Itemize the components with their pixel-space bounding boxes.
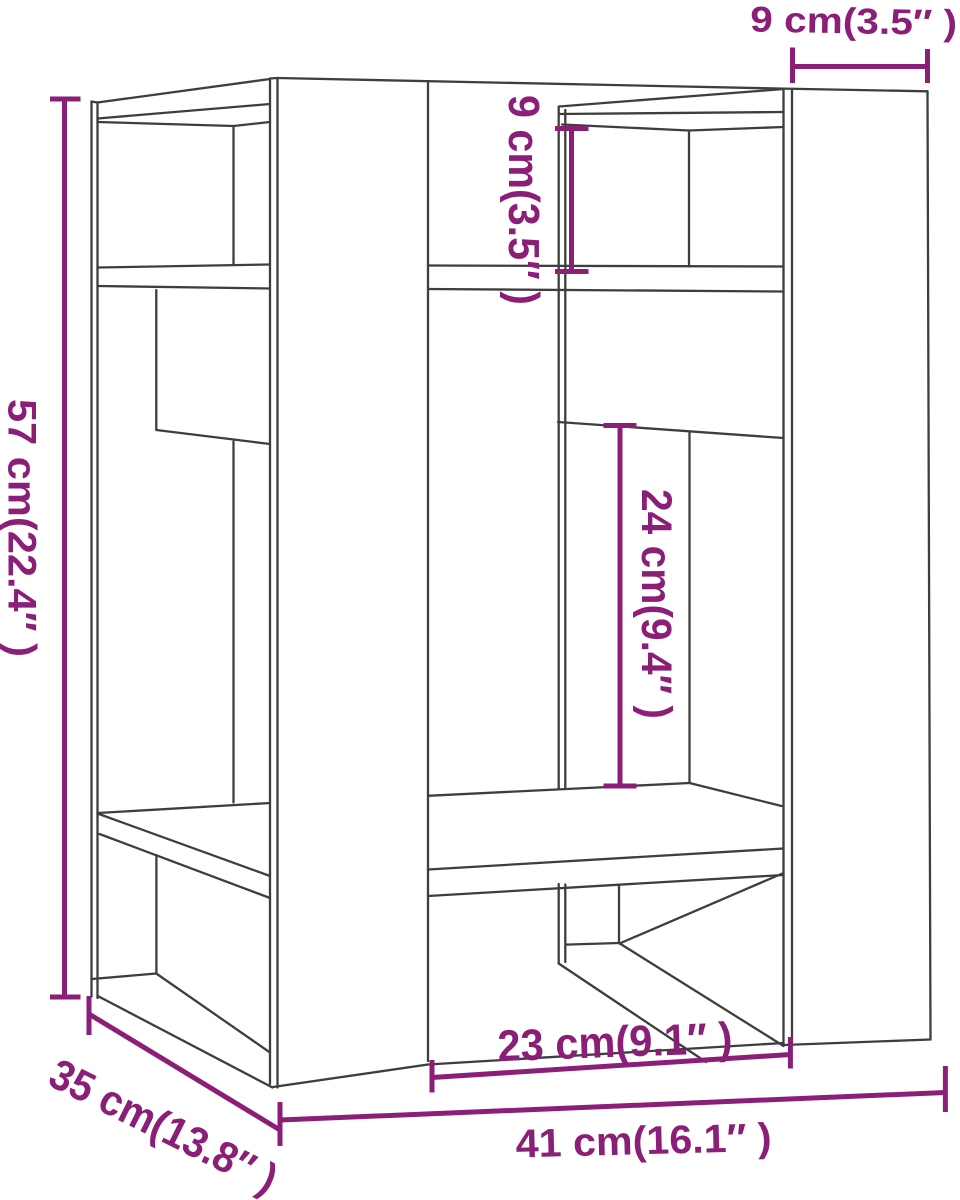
svg-text:35 cm(13.8″ ): 35 cm(13.8″ ) [42,1050,285,1200]
svg-text:57 cm(22.4″ ): 57 cm(22.4″ ) [0,399,44,657]
svg-text:9 cm(3.5″ ): 9 cm(3.5″ ) [750,0,958,43]
svg-text:24 cm(9.4″ ): 24 cm(9.4″ ) [632,489,680,719]
svg-text:23 cm(9.1″ ): 23 cm(9.1″ ) [497,1014,734,1071]
svg-text:41 cm(16.1″ ): 41 cm(16.1″ ) [515,1116,772,1167]
svg-text:9 cm(3.5″ ): 9 cm(3.5″ ) [499,95,548,305]
